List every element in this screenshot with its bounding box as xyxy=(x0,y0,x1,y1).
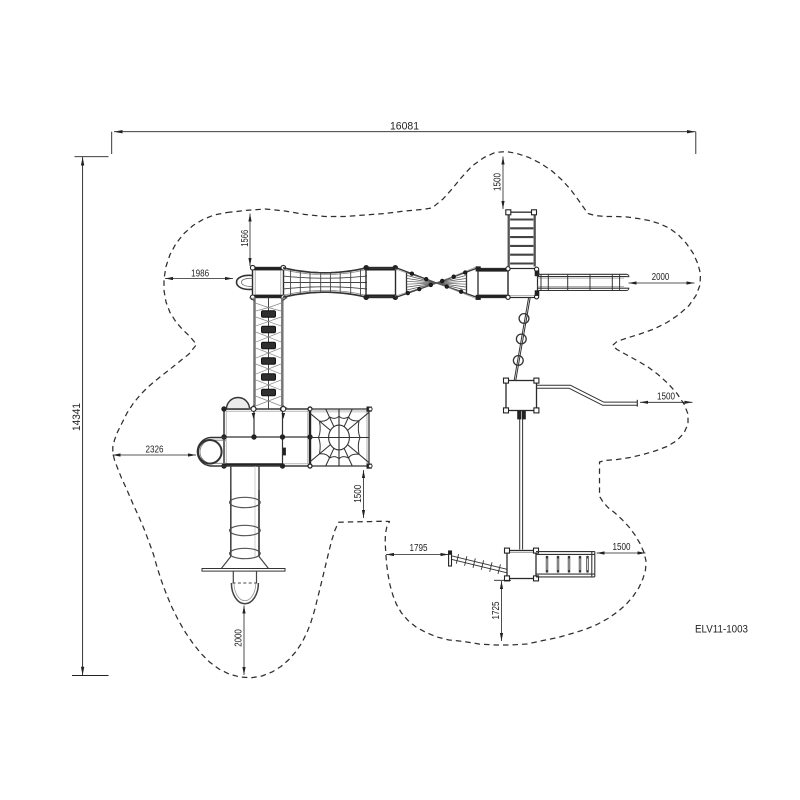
svg-text:1986: 1986 xyxy=(191,268,209,279)
svg-text:2000: 2000 xyxy=(652,272,670,283)
svg-text:1566: 1566 xyxy=(240,229,251,246)
svg-text:2000: 2000 xyxy=(234,629,245,647)
svg-text:14341: 14341 xyxy=(71,403,83,431)
svg-text:1500: 1500 xyxy=(492,173,503,191)
svg-text:16081: 16081 xyxy=(390,121,419,133)
svg-text:1500: 1500 xyxy=(613,542,631,553)
svg-text:1500: 1500 xyxy=(353,484,364,502)
svg-text:2326: 2326 xyxy=(146,444,164,455)
svg-text:1500: 1500 xyxy=(657,392,675,403)
svg-text:1725: 1725 xyxy=(491,601,502,619)
svg-text:1795: 1795 xyxy=(410,543,428,554)
svg-text:ELV11-1003: ELV11-1003 xyxy=(695,624,748,636)
